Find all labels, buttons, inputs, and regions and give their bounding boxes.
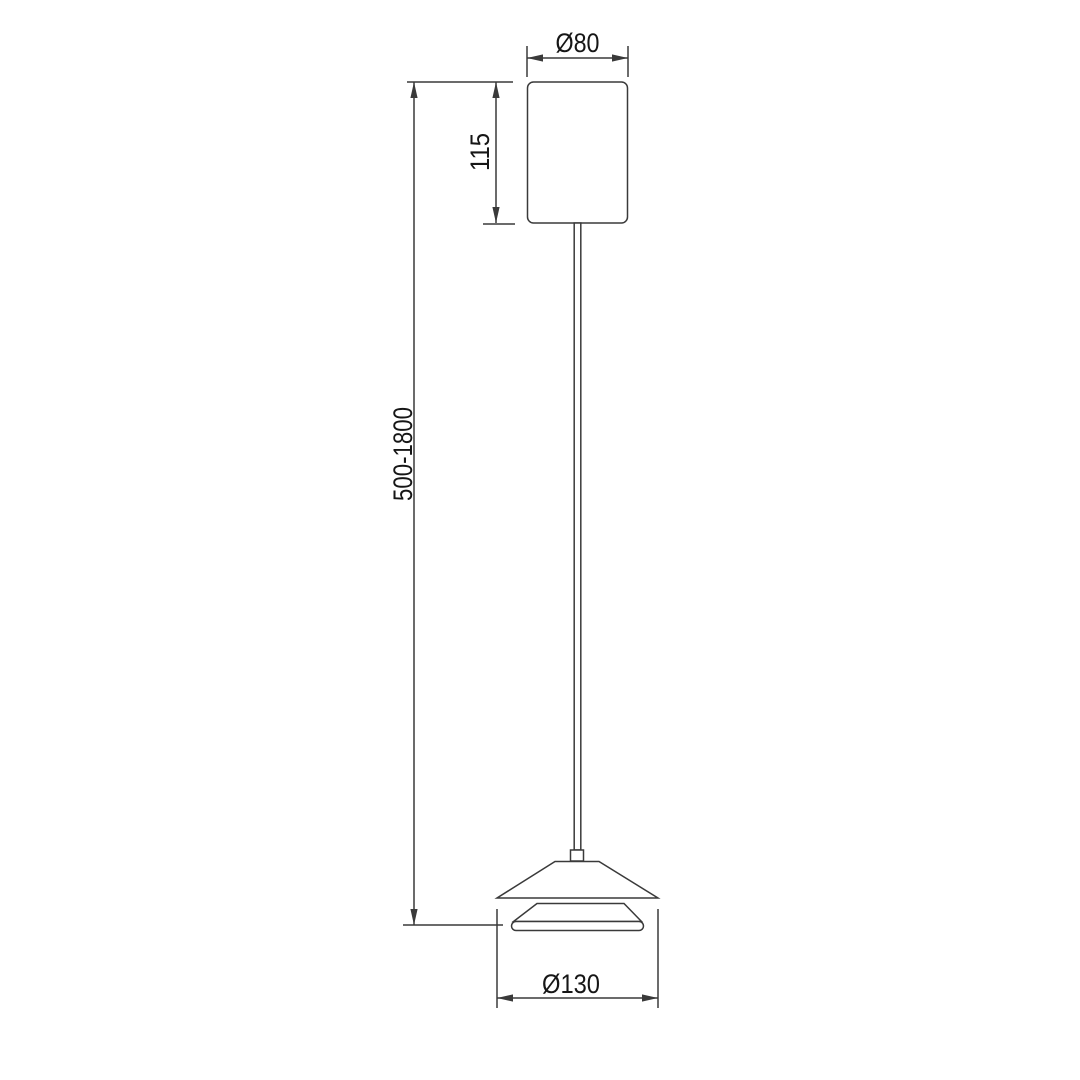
canopy-diameter-label: Ø80 bbox=[556, 28, 600, 58]
suspension-length-label: 500-1800 bbox=[388, 407, 418, 501]
cord-grip bbox=[571, 850, 584, 861]
shade-diffuser-disc bbox=[512, 922, 644, 931]
shade-lower-tier bbox=[514, 904, 642, 922]
pendant-lamp-technical-drawing: Ø80 115 500-1800 Ø130 bbox=[0, 0, 1080, 1080]
canopy-height-label: 115 bbox=[465, 133, 495, 171]
suspension-cord bbox=[574, 223, 581, 850]
shade-diameter-label: Ø130 bbox=[542, 969, 600, 999]
drawing-geometry bbox=[403, 46, 658, 1008]
shade-upper-cone bbox=[497, 862, 658, 899]
canopy-outline bbox=[528, 82, 628, 223]
drawing-canvas: Ø80 115 500-1800 Ø130 bbox=[0, 0, 1080, 1080]
